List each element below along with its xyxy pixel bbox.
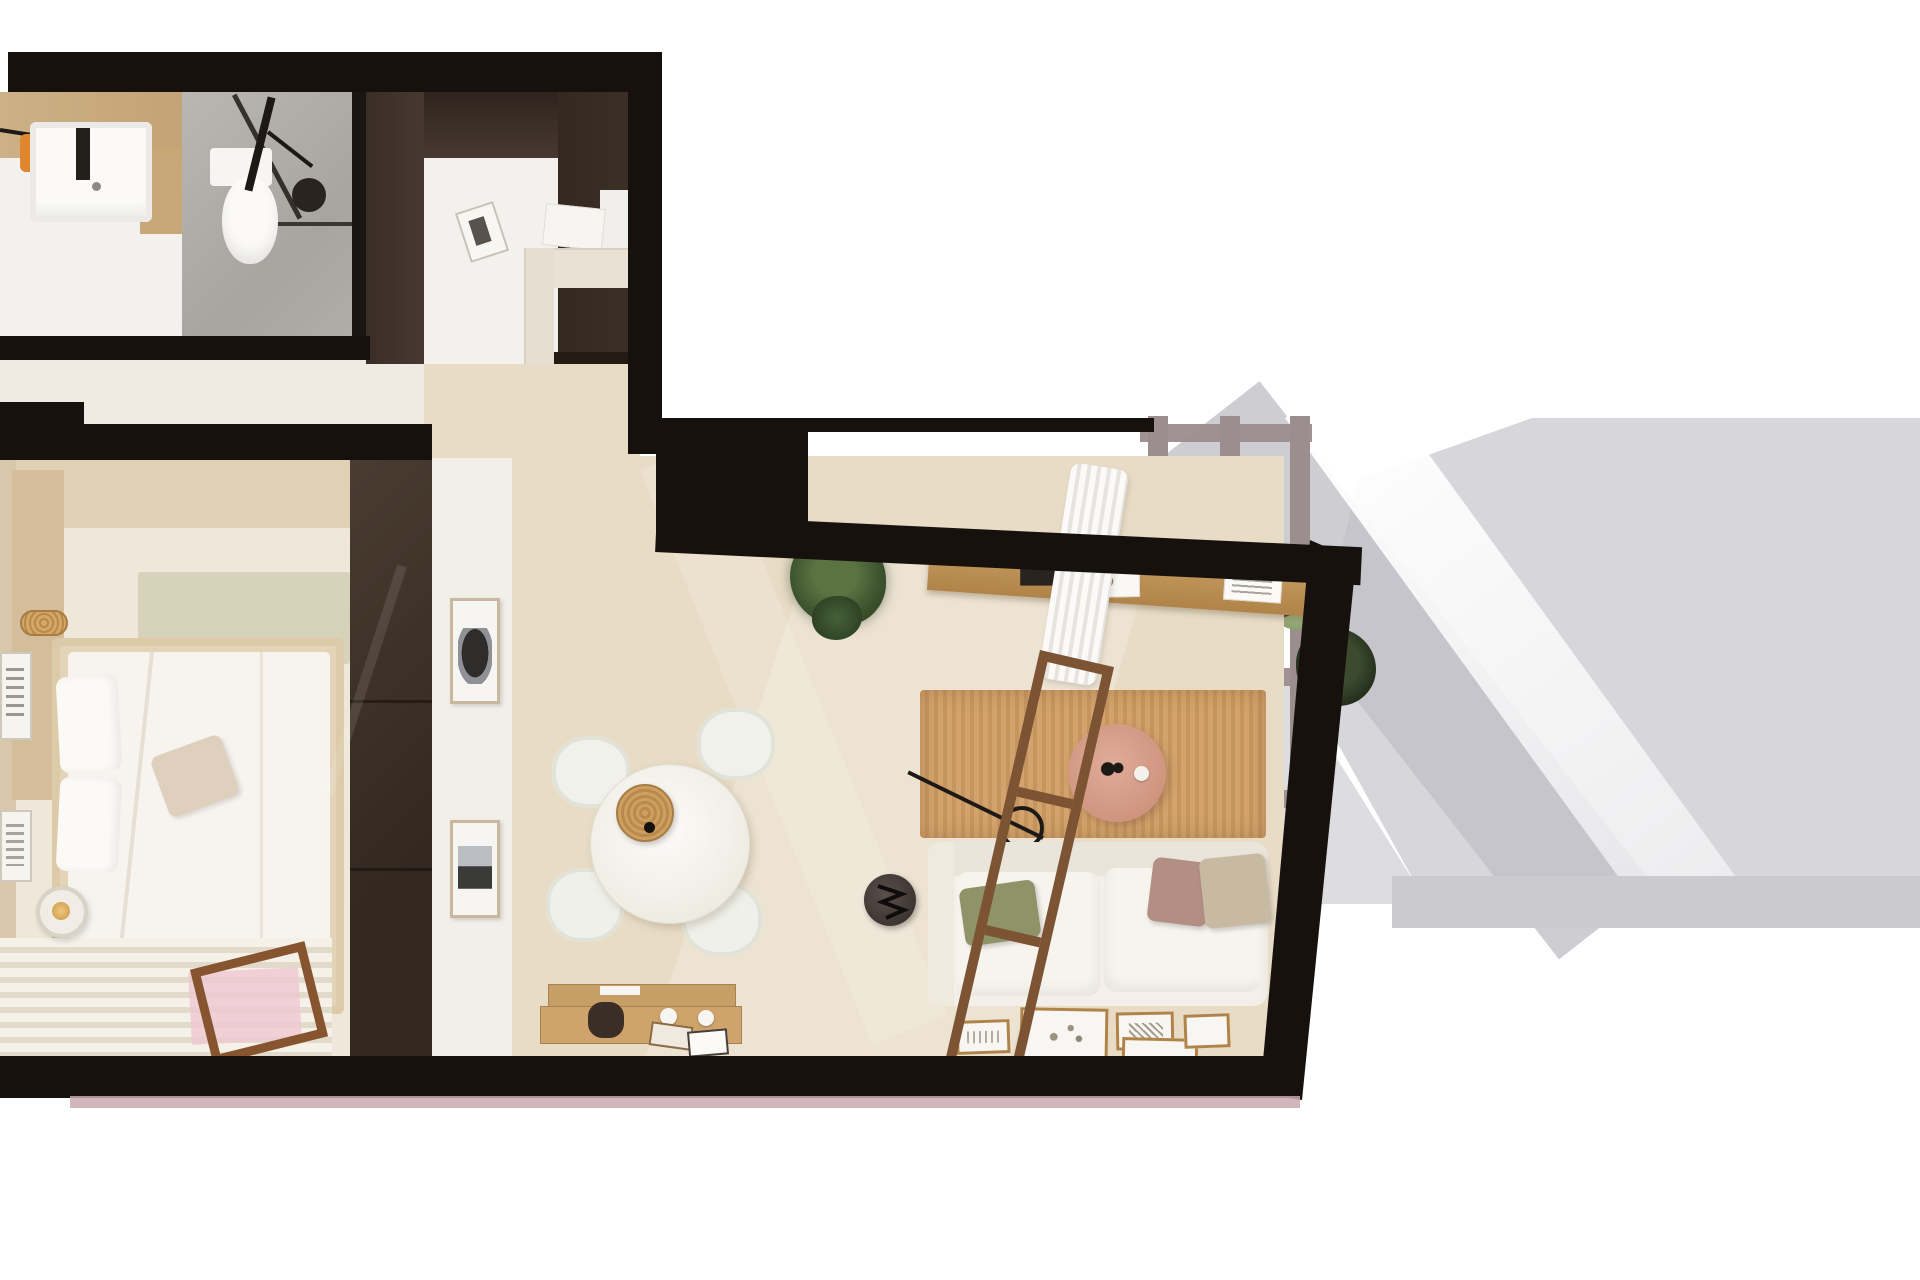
- baseline-pink-accent: [70, 1096, 1300, 1108]
- wall-bedroom-top: [0, 424, 432, 460]
- bed-pillow-2: [56, 776, 123, 873]
- sink-icon: [30, 122, 152, 222]
- frame-sketch-2: [1037, 1019, 1094, 1050]
- hall-white-bench: [542, 203, 606, 251]
- toy-camera-dark: [588, 1002, 624, 1038]
- terrace-lower-step: [1392, 876, 1920, 928]
- hall-brown-wall-left: [366, 92, 424, 364]
- dining-table: [590, 764, 750, 924]
- gallery-frame-art-2: [458, 846, 492, 896]
- apartment-render: [0, 0, 1920, 1280]
- coffee-table-decor-black: [1100, 758, 1126, 780]
- window-outer-frame: [800, 418, 1154, 432]
- bedroom-wall-frame-art-2: [6, 824, 24, 866]
- shower-head-icon: [292, 178, 326, 212]
- sink-drain-dot: [92, 182, 101, 191]
- ladder-rung-2: [985, 925, 1042, 947]
- toy-board-leaning-2: [687, 1028, 729, 1057]
- wall-bottom: [0, 1056, 1300, 1098]
- corridor-floor: [424, 364, 640, 460]
- leaning-frame-5: [1183, 1013, 1230, 1049]
- sofa-armrest: [928, 842, 954, 1006]
- zigzag-lamp-icon: [872, 882, 910, 920]
- rattan-wall-lamp-icon: [20, 610, 68, 636]
- sofa-pillow-tan: [1199, 853, 1272, 930]
- dining-chair-ne: [697, 708, 775, 780]
- rattan-pendant-icon: [616, 784, 674, 842]
- coffee-table-cup: [1134, 766, 1149, 781]
- toy-clock-white: [698, 1010, 714, 1026]
- outer-wall-top: [8, 52, 662, 92]
- gallery-frame-art-1: [458, 628, 492, 684]
- bathroom-half-wall: [0, 336, 370, 360]
- pergola-beam-horizontal-1: [1140, 424, 1312, 442]
- toy-tray-white: [600, 986, 640, 995]
- shower-glass-frame: [352, 92, 366, 364]
- hall-counter-leg: [524, 248, 554, 364]
- ladder-rung-1: [1016, 787, 1073, 809]
- sink-faucet-icon: [76, 128, 90, 180]
- bed-pillow-1: [56, 674, 123, 773]
- wardrobe-seam-2: [350, 868, 432, 871]
- pendant-bulb-dot: [644, 822, 655, 833]
- bedroom-wall-frame-art-1: [6, 668, 24, 722]
- wall-kitchen-vertical: [628, 54, 662, 454]
- gallery-wall-strip: [432, 458, 512, 1058]
- paper-lines: [1231, 578, 1272, 597]
- bedside-lamp-bulb: [52, 902, 70, 920]
- wardrobe: [350, 458, 432, 1058]
